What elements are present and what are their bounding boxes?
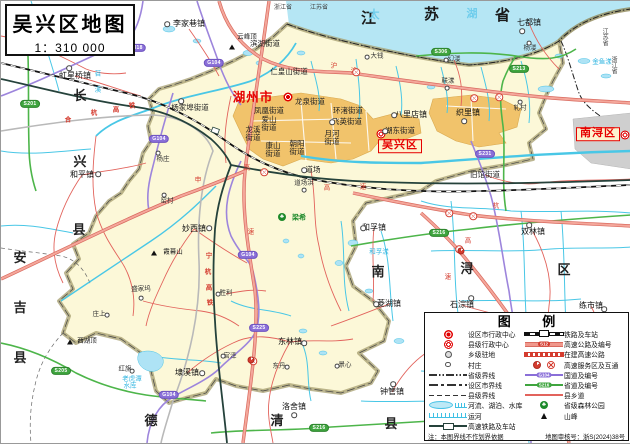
town-label: 康山街道: [266, 142, 281, 158]
legend-row: 河流、湖泊、水库: [428, 400, 524, 410]
road-number-badge: G104: [159, 391, 179, 399]
legend-row-label: 乡级驻地: [468, 349, 495, 359]
road-number-badge: G104: [238, 251, 258, 259]
settlement-dot: [391, 112, 397, 118]
county-name-char: 兴: [73, 155, 86, 169]
road-number-badge: G104: [149, 135, 169, 143]
boundary-label: 江苏省: [310, 5, 328, 11]
village-label: 东丹: [273, 364, 286, 371]
settlement-dot: [105, 313, 110, 318]
legend-row-label: 省级界线: [468, 370, 495, 380]
county-name-char: 县: [72, 223, 85, 237]
legend-symbol-province-line: [428, 374, 468, 376]
village-label: 盛家坞: [131, 287, 151, 294]
legend-row: 铁路及车站: [524, 329, 624, 339]
settlement-dot: [335, 364, 340, 369]
page-title: 吴兴区地图: [7, 8, 133, 37]
legend-symbol-county-line: [428, 395, 468, 396]
town-label: 凤凰街道: [254, 107, 284, 115]
legend-row: 村庄: [428, 360, 524, 370]
village-label: 杨庄: [157, 157, 170, 164]
legend-row-label: 高速公路及编号: [564, 339, 612, 349]
town-label: 菱湖镇: [377, 300, 401, 308]
expressway-name-char: 速: [248, 230, 255, 237]
legend-symbol-construction: [524, 352, 564, 357]
legend-row-label: 铁路及车站: [564, 329, 598, 339]
peak-icon: [151, 251, 157, 256]
town-label: 环渚街道: [333, 107, 363, 115]
interchange-icon: [445, 209, 453, 217]
district-label: 吴兴区: [378, 139, 422, 153]
town-label: 虹星桥镇: [59, 72, 91, 80]
village-label: 杨溇: [524, 46, 537, 53]
settlement-dot: [601, 306, 607, 312]
county-name-char: 安: [13, 251, 26, 265]
town-label: 李家巷镇: [173, 20, 205, 28]
legend-symbol-canal: [428, 413, 468, 418]
legend-row-label: 村庄: [468, 360, 482, 370]
forest-park-icon: ♣: [278, 213, 286, 221]
legend-row: 乡级驻地: [428, 349, 524, 359]
province-name-char: 苏: [424, 7, 440, 23]
town-label: 爱山街道: [262, 116, 277, 132]
settlement-dot: [444, 58, 449, 63]
road-number-badge: S201: [20, 100, 40, 108]
settlement-dot: [95, 171, 101, 177]
settlement-dot: [66, 65, 72, 71]
town-label: 织里镇: [456, 109, 480, 117]
map-scale: 1：310 000: [7, 39, 133, 56]
town-label: 湖东街道: [385, 127, 415, 135]
legend-row-label: 县级界线: [468, 390, 495, 400]
settlement-dot: [178, 98, 184, 104]
expressway-name-char: 高: [324, 186, 331, 193]
town-label: 洛舍镇: [282, 403, 306, 411]
village-label: 幻溇: [448, 57, 461, 64]
road-number-badge: G104: [204, 59, 224, 67]
settlement-dot: [301, 340, 307, 346]
town-label: 龙泉街道: [295, 98, 325, 106]
town-label: 双林镇: [521, 228, 545, 236]
town-label: 月河街道: [325, 130, 340, 146]
legend-row-label: 省道及编号: [564, 380, 598, 390]
settlement-dot: [130, 369, 135, 374]
legend-note: 注：本图界线不作划界依据: [428, 432, 504, 441]
settlement-dot: [285, 365, 290, 370]
district-label: 南浔区: [576, 127, 620, 141]
legend-row-label: 设区市行政中心: [468, 329, 516, 339]
legend-symbol-township-dot: [428, 351, 468, 358]
legend-row-label: 国道及编号: [564, 370, 598, 380]
road-number-badge: S306: [431, 48, 451, 56]
settlement-dot: [329, 119, 335, 125]
town-label: 东林镇: [278, 338, 302, 346]
settlement-dot: [139, 296, 144, 301]
legend-symbol-water: [428, 401, 468, 409]
peak-icon: [67, 340, 73, 345]
boundary-label: 浙江省: [274, 5, 292, 11]
peak-label: 云峰顶: [237, 35, 257, 42]
interchange-icon: [352, 68, 360, 76]
village-label: 道场浜: [294, 181, 314, 188]
legend-row: 县级行政中心: [428, 339, 524, 349]
peak-label: 西湖顶: [77, 339, 97, 346]
village-label: 联漾: [442, 79, 455, 86]
legend-symbol-expressway: S12: [524, 342, 564, 347]
province-name-char: 省: [495, 8, 511, 24]
settlement-dot: [445, 86, 450, 91]
water-name-label: 和孚漾: [369, 250, 389, 257]
town-label: 龙溪街道: [246, 126, 261, 142]
legend-row: 设区市界线: [428, 380, 524, 390]
village-label: 庄上: [93, 312, 106, 319]
legend-row-label: 县乡道: [564, 390, 584, 400]
county-name-char: 南: [371, 265, 384, 279]
settlement-dot: [468, 295, 474, 301]
legend-row: 设区市行政中心: [428, 329, 524, 339]
legend-symbol-city-line: [428, 384, 468, 386]
expressway-name-char: 杭: [493, 204, 500, 211]
village-label: 胜利: [220, 291, 233, 298]
legend-row-label: 河流、湖泊、水库: [468, 400, 522, 410]
legend-symbol-peak: [524, 413, 564, 419]
town-label: 朝阳街道: [290, 140, 305, 156]
town-label: 飞英街道: [332, 118, 362, 126]
water-name-label: 溪: [95, 88, 102, 95]
settlement-dot: [221, 354, 226, 359]
town-label: 埭溪镇: [175, 369, 199, 377]
expressway-name-char: 速: [360, 185, 367, 192]
settlement-dot: [373, 301, 379, 307]
legend-row-label: 山峰: [564, 411, 578, 421]
road-number-badge: S225: [249, 324, 269, 332]
settlement-dot: [461, 118, 467, 124]
road-number-badge: S216: [429, 229, 449, 237]
legend-symbol-service: [524, 361, 564, 369]
legend-symbol-village-dot: [428, 362, 468, 368]
legend-symbol-city-center: [428, 330, 468, 339]
county-name-char: 长: [73, 89, 86, 103]
town-label: 道场: [306, 166, 321, 174]
legend-row: 高速服务区及互通: [524, 360, 624, 370]
interchange-icon: [495, 93, 503, 101]
railway-name-char: 合: [65, 118, 72, 125]
forest-park-label: 梁希: [292, 214, 306, 221]
railway-name-char: 铁: [129, 104, 136, 111]
town-label: 钟管镇: [380, 388, 404, 396]
legend-row: 运河: [428, 411, 524, 421]
legend-row: 在建高速公路: [524, 349, 624, 359]
settlement-dot: [360, 225, 366, 231]
county-name-char: 清: [270, 414, 283, 428]
legend-row-label: 高速服务区及互通: [564, 360, 618, 370]
county-name-char: 德: [144, 414, 157, 428]
expressway-name-char: 高: [465, 239, 472, 246]
settlement-dot: [526, 222, 532, 228]
water-name-label: 金鱼漾: [592, 60, 612, 67]
settlement-dot: [206, 225, 212, 231]
settlement-dot: [365, 55, 370, 60]
legend-symbol-national-road: G104: [524, 374, 564, 376]
village-label: 大钱: [371, 54, 384, 61]
map-review-number: 地图审核号：浙S(2024)38号: [545, 432, 625, 441]
legend-symbol-hsr: [428, 425, 468, 427]
county-name-char: 区: [557, 263, 570, 277]
legend-symbol-forest-park: ♣: [524, 401, 564, 409]
boundary-label: 江苏省: [601, 28, 607, 46]
expressway-name-char: 沪: [331, 64, 338, 71]
railway-name-char: 高: [206, 286, 213, 293]
legend-row: G104国道及编号: [524, 370, 624, 380]
settlement-dot: [301, 167, 307, 173]
map-title-box: 吴兴区地图 1：310 000: [5, 4, 135, 56]
expressway-name-char: 申: [195, 178, 202, 185]
legend-row-label: 在建高速公路: [564, 349, 605, 359]
service-area-icon: [458, 248, 465, 255]
water-name-label: 苕: [95, 72, 102, 79]
interchange-icon: [469, 212, 477, 220]
legend-symbol-provincial-road: S216: [524, 384, 564, 386]
expressway-name-char: 高: [244, 166, 251, 173]
lake-name-char: 湖: [467, 9, 480, 21]
town-label: 旧馆街道: [470, 171, 500, 179]
peak-icon: [229, 45, 235, 50]
water-name-label: 水库: [124, 384, 137, 391]
town-label: 杨家埠街道: [171, 104, 209, 112]
legend-row: S12高速公路及编号: [524, 339, 624, 349]
county-name-char: 县: [384, 417, 397, 431]
railway-name-char: 铁: [207, 301, 214, 308]
city-label-huzhou: 湖州市: [233, 91, 274, 104]
lake-name-char: 太: [369, 10, 382, 22]
settlement-dot: [382, 128, 388, 134]
legend-title: 图 例: [428, 314, 625, 329]
town-label: 练市镇: [579, 302, 603, 310]
road-number-badge: S231: [475, 150, 495, 158]
settlement-dot: [519, 28, 525, 34]
legend-row-label: 省级森林公园: [564, 400, 605, 410]
settlement-dot: [216, 292, 221, 297]
county-name-char: 县: [13, 351, 26, 365]
town-label: 仁皇山街道: [270, 68, 308, 76]
interchange-icon: [470, 94, 478, 102]
county-center-symbol: [621, 131, 630, 140]
railway-name-char: 杭: [205, 270, 212, 277]
railway-name-char: 杭: [91, 111, 98, 118]
village-label: 景心: [339, 363, 352, 370]
county-name-char: 吉: [13, 301, 26, 315]
expressway-name-char: 速: [445, 275, 452, 282]
village-label: 窑村: [161, 199, 174, 206]
settlement-dot: [527, 41, 532, 46]
settlement-dot: [164, 21, 170, 27]
settlement-dot: [390, 381, 396, 387]
road-number-badge: S205: [51, 367, 71, 375]
town-label: 七都镇: [517, 19, 541, 27]
railway-name-char: 宁: [206, 254, 213, 261]
legend-symbol-county-center: [428, 340, 468, 349]
legend-row: 省级界线: [428, 370, 524, 380]
village-label: 官泽: [224, 354, 237, 361]
settlement-dot: [291, 412, 297, 418]
legend-symbol-rail: [524, 332, 564, 337]
town-label: 石淙镇: [450, 301, 474, 309]
legend-symbol-county-road: [524, 394, 564, 396]
county-name-char: 浔: [460, 262, 473, 276]
legend-row: 山峰: [524, 411, 624, 421]
legend-row-label: 高速铁路及车站: [468, 421, 516, 431]
legend-row-label: 设区市界线: [468, 380, 502, 390]
town-label: 和平镇: [70, 171, 94, 179]
peak-label: 霞幕山: [163, 250, 183, 257]
settlement-dot: [518, 100, 523, 105]
town-label: 八里店镇: [395, 111, 427, 119]
road-number-badge: S216: [309, 424, 329, 432]
legend-row-label: 运河: [468, 411, 482, 421]
settlement-dot: [199, 370, 205, 376]
interchange-icon: [260, 168, 268, 176]
road-number-badge: S213: [509, 65, 529, 73]
legend: 图 例 设区市行政中心县级行政中心乡级驻地村庄省级界线设区市界线县级界线河流、湖…: [424, 312, 629, 441]
settlement-dot: [302, 188, 307, 193]
city-center-symbol: [284, 93, 293, 102]
legend-row: S216省道及编号: [524, 380, 624, 390]
railway-name-char: 高: [113, 108, 120, 115]
settlement-dot: [156, 151, 161, 156]
service-area-icon: [248, 357, 255, 364]
legend-row: ♣省级森林公园: [524, 400, 624, 410]
legend-row: 县级界线: [428, 390, 524, 400]
village-label: 轧村: [514, 106, 527, 113]
settlement-dot: [162, 193, 167, 198]
map-page: 江苏省太湖长兴县安吉县德清县南浔区浙江省江苏省江苏省浙江省湖州市吴兴区南浔区滨湖…: [0, 0, 630, 444]
legend-row-label: 县级行政中心: [468, 339, 509, 349]
legend-row: 高速铁路及车站: [428, 421, 524, 431]
town-label: 妙西镇: [182, 225, 206, 233]
legend-row: 县乡道: [524, 390, 624, 400]
